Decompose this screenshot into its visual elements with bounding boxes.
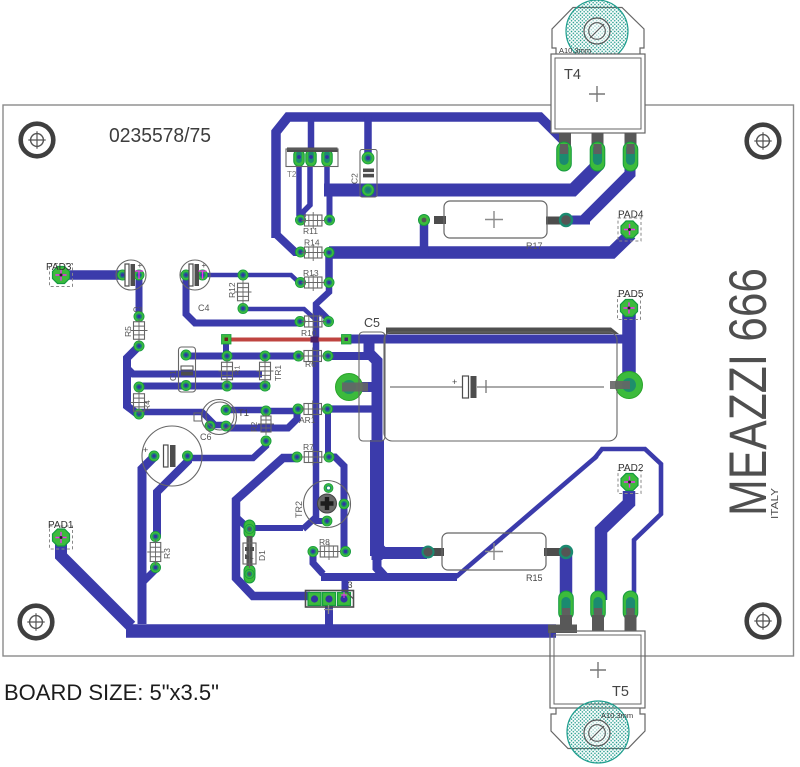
svg-text:R11: R11 bbox=[303, 226, 318, 236]
svg-text:TR2: TR2 bbox=[294, 501, 304, 518]
svg-text:C4: C4 bbox=[0, 0, 12, 2]
svg-text:+: + bbox=[452, 377, 457, 387]
svg-text:C5: C5 bbox=[364, 316, 380, 330]
svg-text:0235578/75: 0235578/75 bbox=[109, 124, 211, 147]
svg-text:R5: R5 bbox=[123, 326, 133, 337]
svg-text:+: + bbox=[138, 261, 143, 270]
svg-text:PAD1: PAD1 bbox=[48, 520, 74, 531]
svg-text:R13: R13 bbox=[303, 268, 319, 278]
svg-text:PAD4: PAD4 bbox=[618, 210, 644, 221]
svg-text:R3: R3 bbox=[162, 548, 172, 559]
svg-text:R12: R12 bbox=[227, 282, 237, 298]
svg-text:T4: T4 bbox=[564, 67, 581, 83]
svg-text:PAD2: PAD2 bbox=[618, 463, 644, 474]
svg-text:BOARD SIZE: 5"x3.5": BOARD SIZE: 5"x3.5" bbox=[4, 680, 219, 705]
svg-text:PAD5: PAD5 bbox=[618, 289, 644, 300]
svg-text:R15: R15 bbox=[526, 573, 543, 583]
svg-text:R17: R17 bbox=[526, 241, 543, 251]
svg-text:C6: C6 bbox=[200, 432, 212, 442]
svg-text:+: + bbox=[143, 445, 148, 455]
svg-text:TR1: TR1 bbox=[273, 365, 283, 381]
svg-text:R14: R14 bbox=[304, 238, 320, 248]
svg-text:3: 3 bbox=[348, 580, 353, 590]
svg-text:R1: R1 bbox=[233, 365, 242, 375]
svg-text:R7: R7 bbox=[303, 442, 314, 452]
svg-text:C2: C2 bbox=[350, 173, 360, 184]
svg-text:T2: T2 bbox=[287, 170, 297, 179]
svg-text:+: + bbox=[202, 261, 207, 270]
svg-text:AR1: AR1 bbox=[299, 415, 316, 425]
svg-text:R10: R10 bbox=[301, 328, 317, 338]
svg-text:PAD3: PAD3 bbox=[46, 262, 72, 273]
svg-text:C1: C1 bbox=[168, 370, 178, 381]
svg-text:R6: R6 bbox=[305, 359, 316, 369]
svg-text:R2: R2 bbox=[250, 421, 259, 432]
svg-text:T1: T1 bbox=[238, 408, 249, 419]
svg-text:A10.3mm: A10.3mm bbox=[601, 711, 633, 720]
svg-text:C4: C4 bbox=[198, 303, 210, 313]
svg-text:R8: R8 bbox=[319, 537, 330, 547]
svg-text:MEAZZI 666: MEAZZI 666 bbox=[719, 268, 778, 516]
svg-text:D1: D1 bbox=[257, 550, 267, 561]
svg-text:C3: C3 bbox=[133, 305, 143, 314]
svg-text:ITALY: ITALY bbox=[769, 488, 781, 519]
svg-text:T5: T5 bbox=[612, 684, 629, 700]
svg-text:R4: R4 bbox=[142, 400, 152, 411]
